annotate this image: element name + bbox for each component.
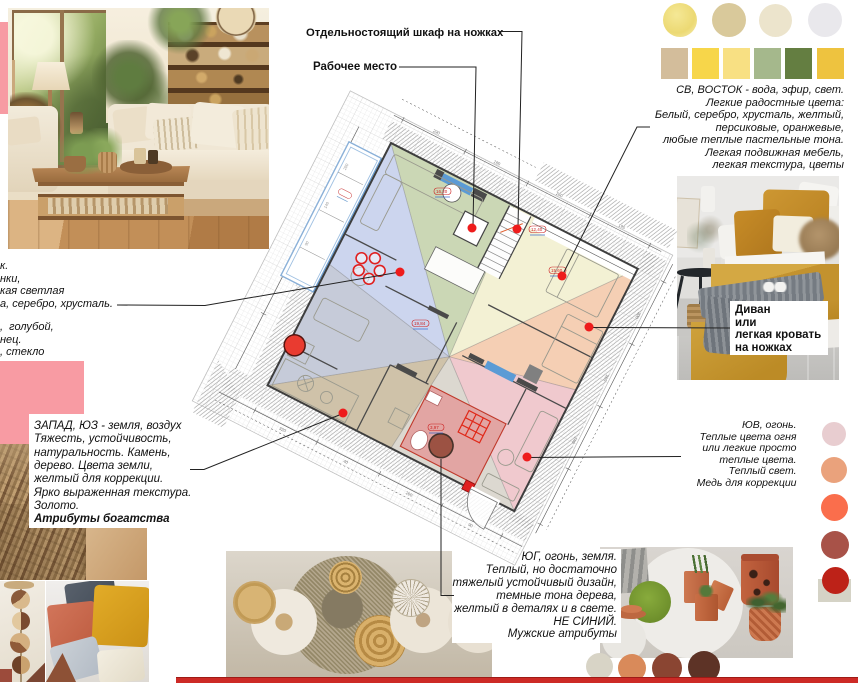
svg-text:12,40: 12,40 (531, 227, 543, 232)
svg-text:16,20: 16,20 (436, 189, 448, 194)
svg-text:3,97: 3,97 (430, 425, 439, 430)
svg-text:19,84: 19,84 (414, 321, 426, 326)
